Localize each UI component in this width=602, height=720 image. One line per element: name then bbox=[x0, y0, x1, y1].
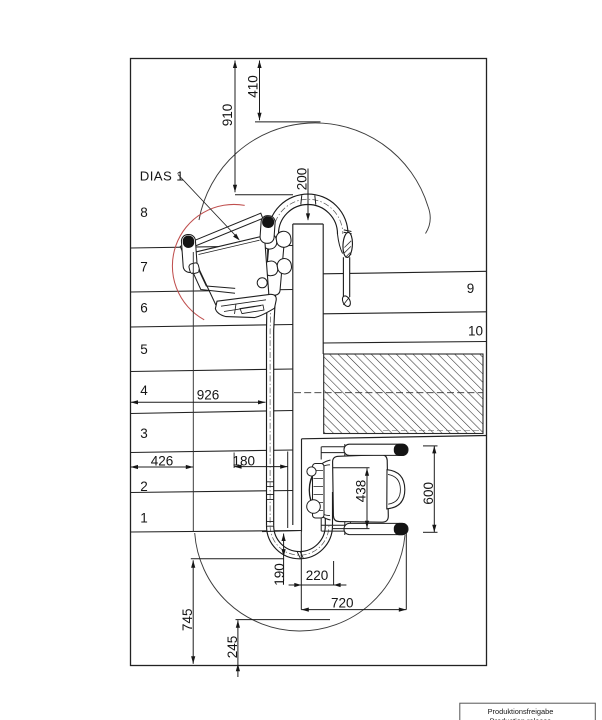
svg-text:745: 745 bbox=[180, 609, 195, 632]
svg-text:7: 7 bbox=[140, 260, 148, 275]
svg-text:9: 9 bbox=[467, 281, 475, 296]
svg-text:720: 720 bbox=[331, 596, 354, 611]
svg-text:Production release: Production release bbox=[490, 717, 552, 720]
svg-text:10: 10 bbox=[468, 324, 483, 339]
svg-text:1: 1 bbox=[140, 511, 148, 526]
svg-text:2: 2 bbox=[140, 479, 148, 494]
svg-text:245: 245 bbox=[225, 636, 240, 659]
svg-text:926: 926 bbox=[197, 388, 220, 403]
svg-text:410: 410 bbox=[246, 75, 261, 98]
svg-text:Produktionsfreigabe: Produktionsfreigabe bbox=[488, 707, 554, 716]
svg-text:5: 5 bbox=[140, 342, 148, 357]
svg-text:426: 426 bbox=[151, 453, 174, 468]
svg-text:6: 6 bbox=[140, 301, 148, 316]
svg-text:3: 3 bbox=[140, 426, 148, 441]
svg-text:8: 8 bbox=[140, 205, 148, 220]
svg-text:600: 600 bbox=[421, 482, 436, 505]
svg-text:180: 180 bbox=[233, 454, 256, 469]
svg-text:438: 438 bbox=[354, 480, 369, 503]
svg-text:220: 220 bbox=[306, 568, 329, 583]
svg-text:4: 4 bbox=[140, 383, 148, 398]
svg-text:200: 200 bbox=[294, 168, 309, 191]
svg-text:910: 910 bbox=[220, 104, 235, 127]
svg-text:190: 190 bbox=[272, 563, 287, 586]
svg-text:DIAS 1: DIAS 1 bbox=[140, 168, 184, 183]
